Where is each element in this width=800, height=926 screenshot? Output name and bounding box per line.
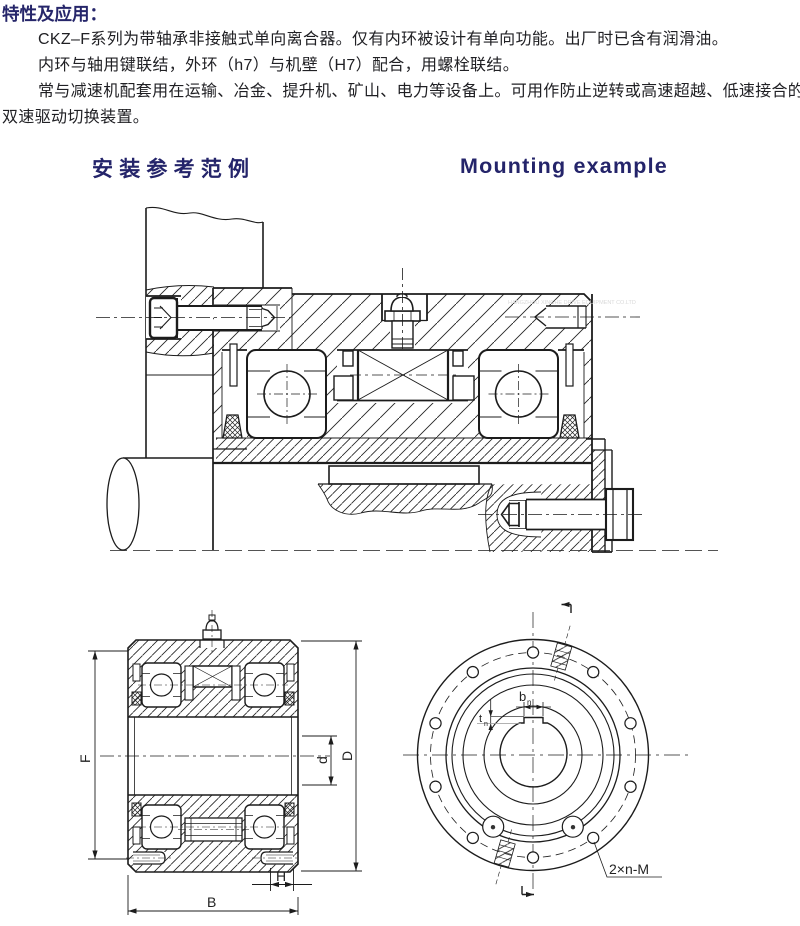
svg-text:HANGZHOU XINGHE DRIVE EQUIPMEN: HANGZHOU XINGHE DRIVE EQUIPMENT CO.LTD xyxy=(508,300,636,306)
svg-text:n: n xyxy=(527,698,531,707)
svg-text:t: t xyxy=(479,713,482,725)
svg-text:H: H xyxy=(276,868,286,884)
svg-text:b: b xyxy=(519,689,526,704)
svg-text:B: B xyxy=(207,894,216,910)
svg-text:D: D xyxy=(339,751,355,761)
svg-text:d: d xyxy=(314,756,330,764)
svg-text:F: F xyxy=(77,754,93,763)
svg-text:2×n-M: 2×n-M xyxy=(609,861,649,877)
svg-text:n: n xyxy=(484,721,488,728)
